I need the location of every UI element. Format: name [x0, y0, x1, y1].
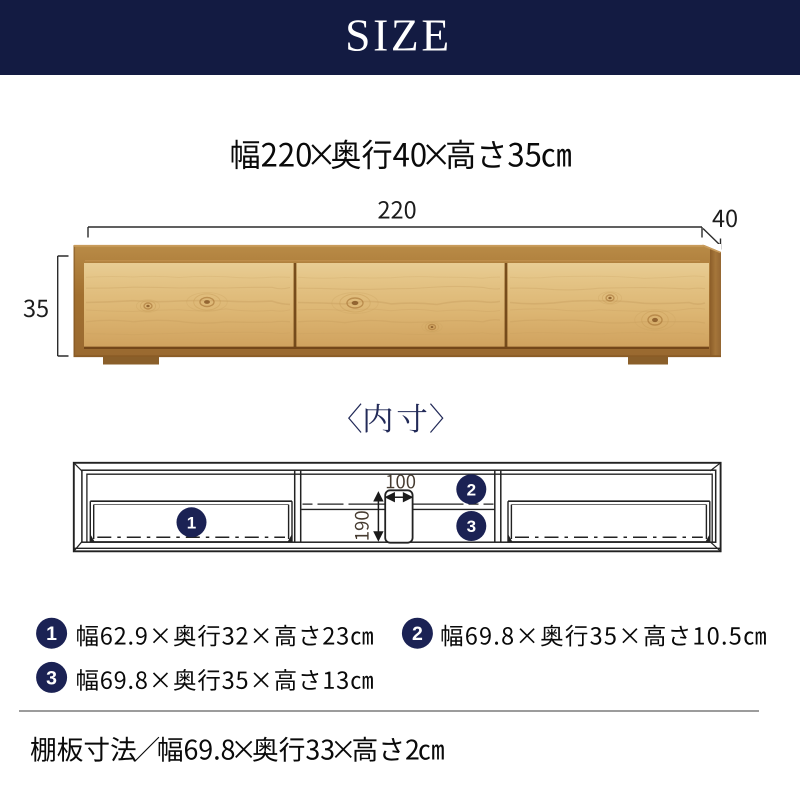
svg-text:SIZE: SIZE — [345, 10, 452, 61]
svg-text:1: 1 — [187, 513, 196, 532]
svg-text:2: 2 — [467, 480, 476, 499]
svg-text:1: 1 — [46, 623, 57, 645]
svg-text:3: 3 — [467, 517, 476, 536]
svg-text:3: 3 — [46, 667, 57, 689]
svg-text:2: 2 — [412, 623, 423, 645]
